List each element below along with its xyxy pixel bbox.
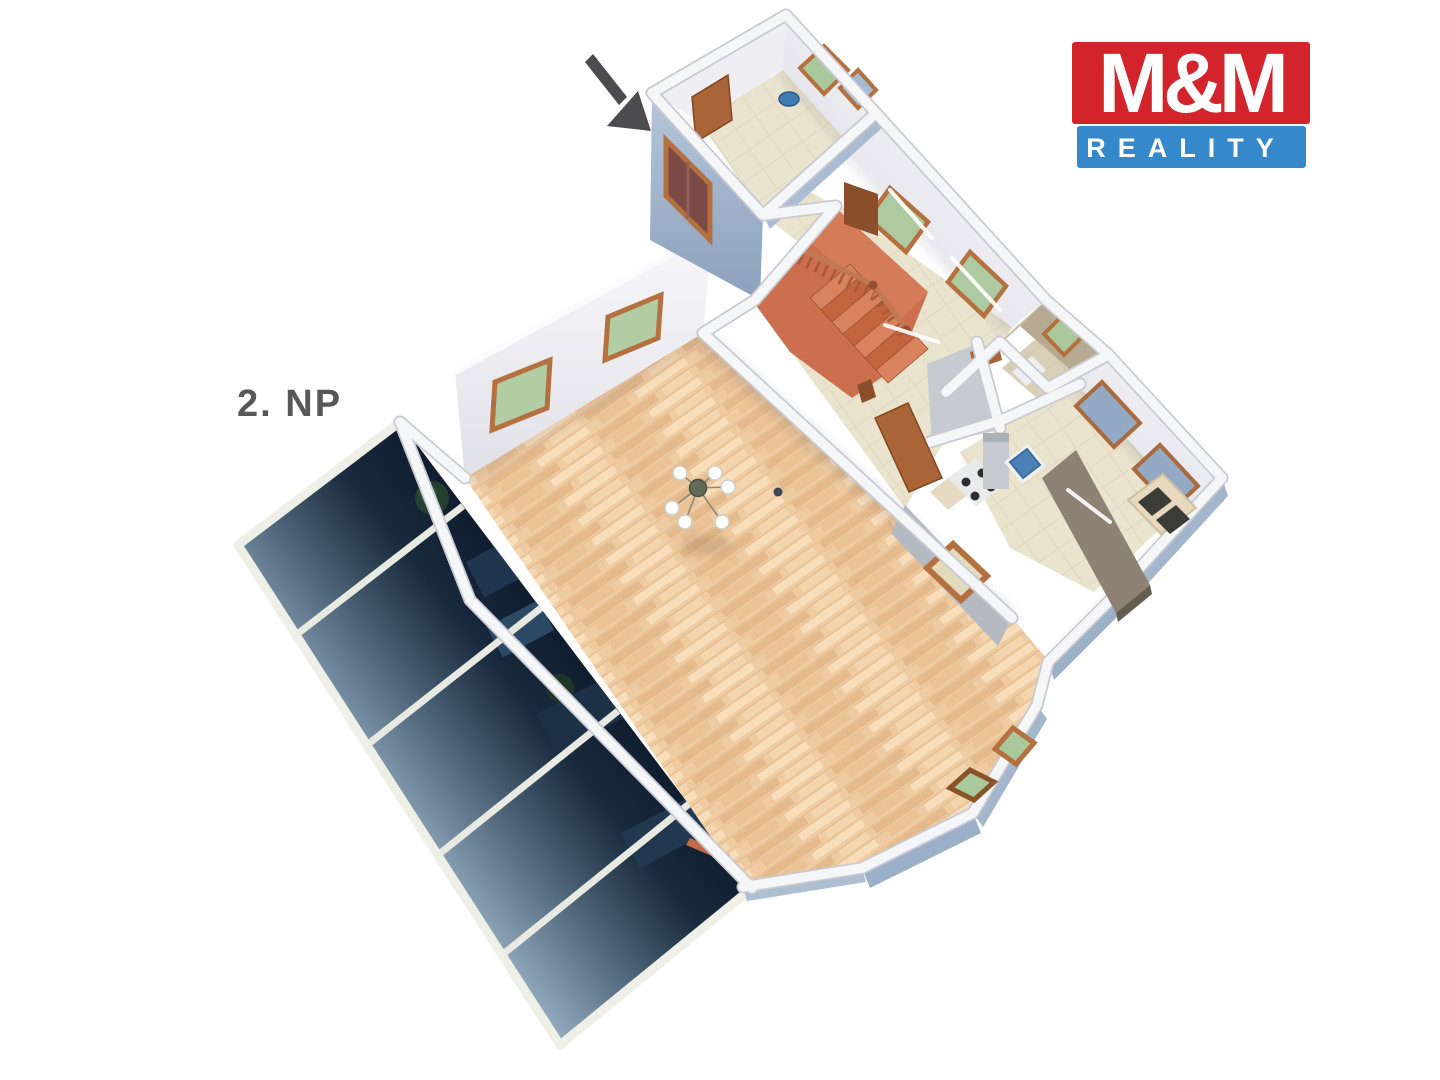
- round-mirror: [779, 92, 799, 106]
- arrow-shaft: [585, 54, 627, 105]
- entrance-arrow-icon: [585, 54, 651, 131]
- logo-wordmark: M&M: [1098, 36, 1284, 130]
- newel-post: [869, 281, 878, 290]
- chandelier-hub: [690, 480, 707, 497]
- logo-subtext: REALITY: [1086, 133, 1286, 163]
- floor-plan-page: 2. NP M&M REALITY: [0, 0, 1440, 1080]
- floor-level-label: 2. NP: [237, 383, 342, 425]
- mm-reality-logo: M&M REALITY: [1072, 36, 1310, 168]
- floor-plan-render: 2. NP M&M REALITY: [0, 0, 1440, 1080]
- hood-top: [983, 433, 1009, 442]
- ceiling-spot: [774, 488, 783, 497]
